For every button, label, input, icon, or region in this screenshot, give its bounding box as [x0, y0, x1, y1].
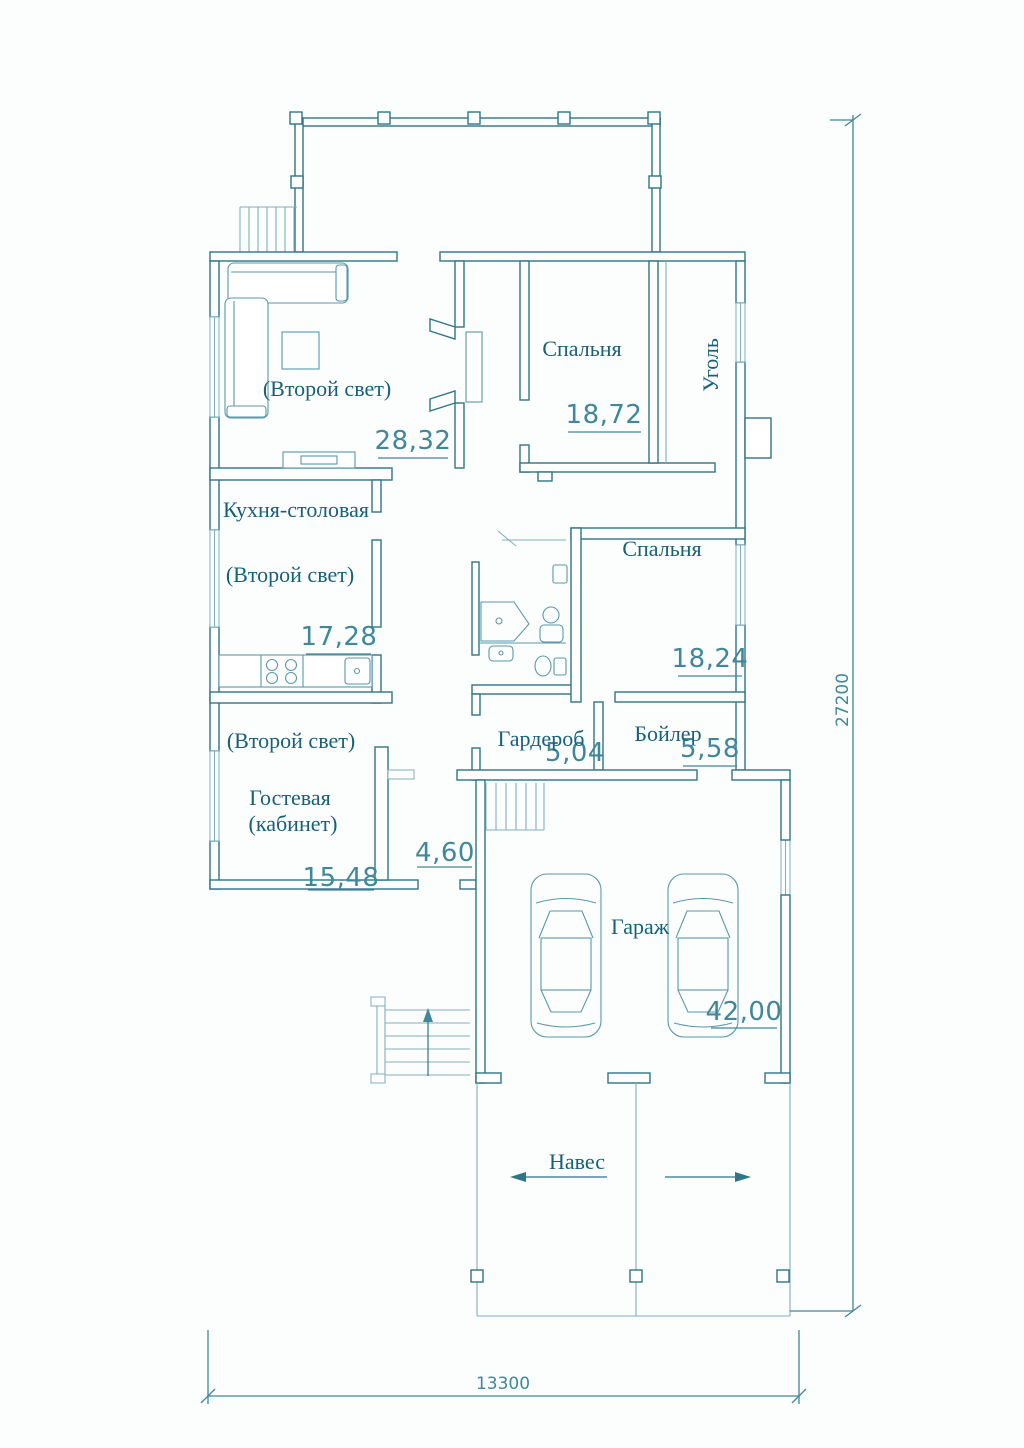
- area-kitchen: 17,28: [301, 622, 378, 652]
- window: [210, 751, 219, 841]
- flue: [466, 332, 482, 402]
- area-bedroom-mid: 18,24: [672, 644, 749, 674]
- kitchen-counter: [219, 655, 372, 687]
- label-kitchen: Кухня-столовая: [223, 497, 369, 522]
- canopy-arrows: [510, 1172, 751, 1182]
- chimney-bump: [745, 418, 771, 458]
- bathroom-fixtures: [479, 565, 567, 676]
- garage-stairs: [486, 783, 544, 830]
- window: [736, 545, 745, 625]
- label-kitchen-second-light: (Второй свет): [226, 562, 354, 587]
- window: [736, 303, 745, 362]
- canopy-post: [777, 1270, 789, 1282]
- label-guest-line2: (кабинет): [249, 811, 338, 836]
- label-guest-line1: Гостевая: [249, 785, 330, 810]
- terrace: [240, 112, 661, 252]
- overall-dimensions: 27200 13300: [201, 114, 861, 1404]
- toilet: [543, 607, 559, 623]
- label-wardrobe: Гардероб: [498, 726, 585, 751]
- label-boiler: Бойлер: [634, 721, 701, 746]
- shelf: [388, 770, 414, 779]
- sofa: [225, 298, 268, 418]
- corner-shower: [481, 602, 529, 641]
- area-guest: 15,48: [303, 863, 380, 893]
- canopy: [471, 1083, 790, 1316]
- canopy-post: [630, 1270, 642, 1282]
- car-top-view: [531, 874, 601, 1037]
- area-bedroom-top: 18,72: [566, 400, 643, 430]
- canopy-post: [471, 1270, 483, 1282]
- floor-plan-page: 28,32 18,72 17,28 18,24 5,04 5,58 15,48 …: [0, 0, 1024, 1448]
- floor-plan-drawing: 28,32 18,72 17,28 18,24 5,04 5,58 15,48 …: [0, 0, 1024, 1448]
- toilet: [535, 656, 551, 676]
- dim-horizontal: 13300: [476, 1374, 530, 1394]
- door-jamb: [430, 319, 455, 339]
- terrace-stairs: [240, 207, 297, 252]
- fireplace: [283, 452, 355, 468]
- label-bedroom-mid: Спальня: [622, 536, 701, 561]
- wall-sink: [553, 565, 567, 583]
- washbasin: [489, 646, 513, 661]
- area-garage: 42,00: [706, 997, 783, 1027]
- entry-porch-stairs: [371, 997, 470, 1083]
- label-coal-room: Уголь: [698, 338, 723, 392]
- area-entry-hall: 4,60: [415, 838, 475, 868]
- label-garage: Гараж: [611, 914, 670, 939]
- door-jamb: [430, 391, 455, 411]
- window: [210, 530, 219, 627]
- window: [210, 317, 219, 417]
- label-living-second-light: (Второй свет): [263, 376, 391, 401]
- coffee-table: [282, 332, 319, 369]
- bathroom-door-leaf: [498, 531, 566, 546]
- dim-vertical: 27200: [833, 673, 853, 727]
- window: [781, 840, 790, 895]
- sofa: [228, 263, 348, 303]
- label-bedroom-top: Спальня: [542, 336, 621, 361]
- kitchen-fixtures: [219, 655, 372, 687]
- area-living: 28,32: [375, 426, 452, 456]
- label-guest-second-light: (Второй свет): [227, 728, 355, 753]
- label-canopy: Навес: [549, 1149, 605, 1174]
